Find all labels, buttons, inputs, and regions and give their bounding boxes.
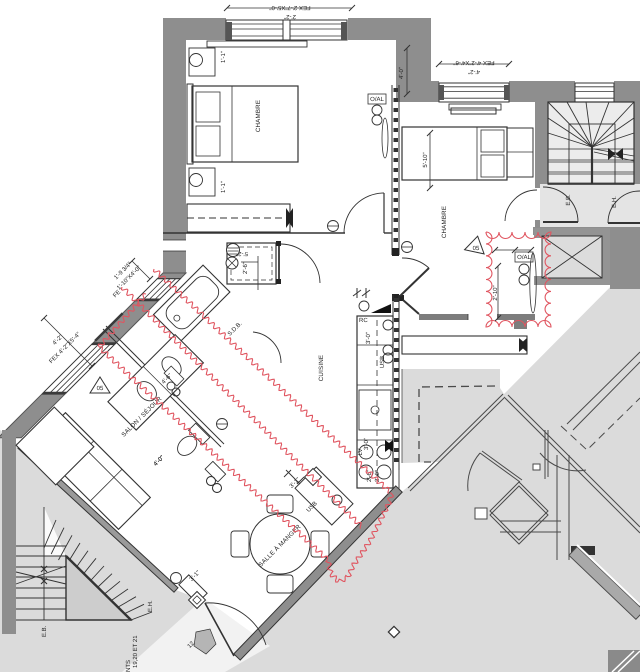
svg-text:FEX 2'-7"X5'-0": FEX 2'-7"X5'-0": [269, 4, 310, 11]
svg-text:RC: RC: [359, 317, 368, 324]
svg-text:05: 05: [97, 385, 104, 392]
svg-text:E.H.: E.H.: [147, 600, 154, 612]
svg-text:E.H.: E.H.: [611, 196, 618, 208]
svg-text:2'-6": 2'-6": [242, 262, 249, 274]
svg-text:E.B.: E.B.: [41, 625, 48, 637]
svg-text:LV: LV: [357, 449, 364, 456]
svg-text:NTS: NTS: [125, 660, 132, 672]
svg-text:O/AL: O/AL: [370, 96, 384, 103]
svg-text:O/AL: O/AL: [517, 254, 531, 261]
svg-text:1'-1": 1'-1": [220, 181, 227, 193]
svg-text:1'-1": 1'-1": [220, 51, 227, 63]
svg-text:3'-0": 3'-0": [363, 438, 370, 450]
svg-text:CHAMBRE: CHAMBRE: [441, 206, 448, 238]
svg-text:FEX 4'-2"X4'-6": FEX 4'-2"X4'-6": [453, 59, 494, 66]
svg-text:5'-10": 5'-10": [422, 152, 429, 167]
svg-text:19,20 ET 21: 19,20 ET 21: [132, 635, 139, 668]
svg-text:CHAMBRE: CHAMBRE: [255, 100, 262, 132]
svg-text:2'-2": 2'-2": [284, 13, 296, 20]
svg-text:E.B.: E.B.: [565, 194, 572, 206]
svg-text:05: 05: [473, 245, 480, 252]
svg-text:3'-0": 3'-0": [365, 332, 372, 344]
svg-text:4'-2": 4'-2": [468, 68, 480, 75]
svg-text:CUISINE: CUISINE: [318, 355, 325, 382]
svg-text:4'-0": 4'-0": [398, 67, 405, 79]
svg-text:USB: USB: [379, 356, 386, 368]
svg-text:5'-2": 5'-2": [236, 250, 248, 257]
